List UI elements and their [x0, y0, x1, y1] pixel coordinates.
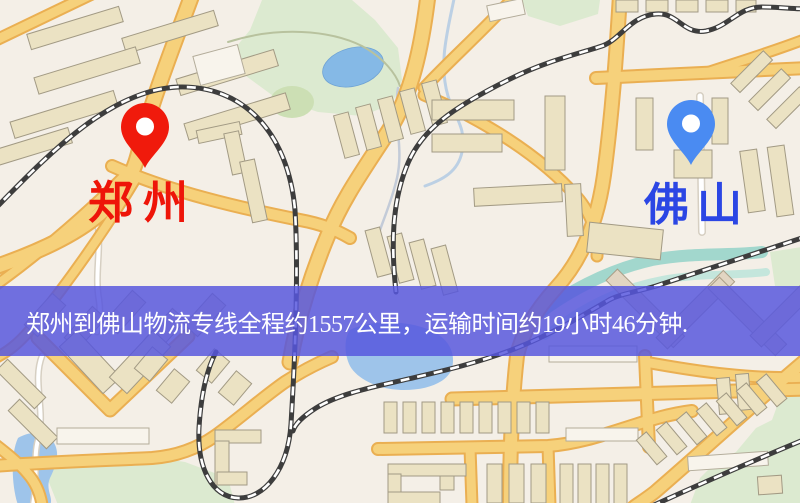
map-canvas[interactable] — [0, 0, 800, 503]
origin-pin-icon[interactable] — [119, 101, 171, 170]
destination-city-label: 佛山 — [644, 183, 750, 228]
destination-pin-icon[interactable] — [665, 98, 717, 167]
route-info-text: 郑州到佛山物流专线全程约1557公里，运输时间约19小时46分钟. — [0, 304, 688, 339]
map-view: 郑州 佛山 郑州到佛山物流专线全程约1557公里，运输时间约19小时46分钟. — [0, 0, 800, 503]
origin-city-label: 郑州 — [88, 181, 198, 226]
route-info-banner: 郑州到佛山物流专线全程约1557公里，运输时间约19小时46分钟. — [0, 286, 800, 356]
